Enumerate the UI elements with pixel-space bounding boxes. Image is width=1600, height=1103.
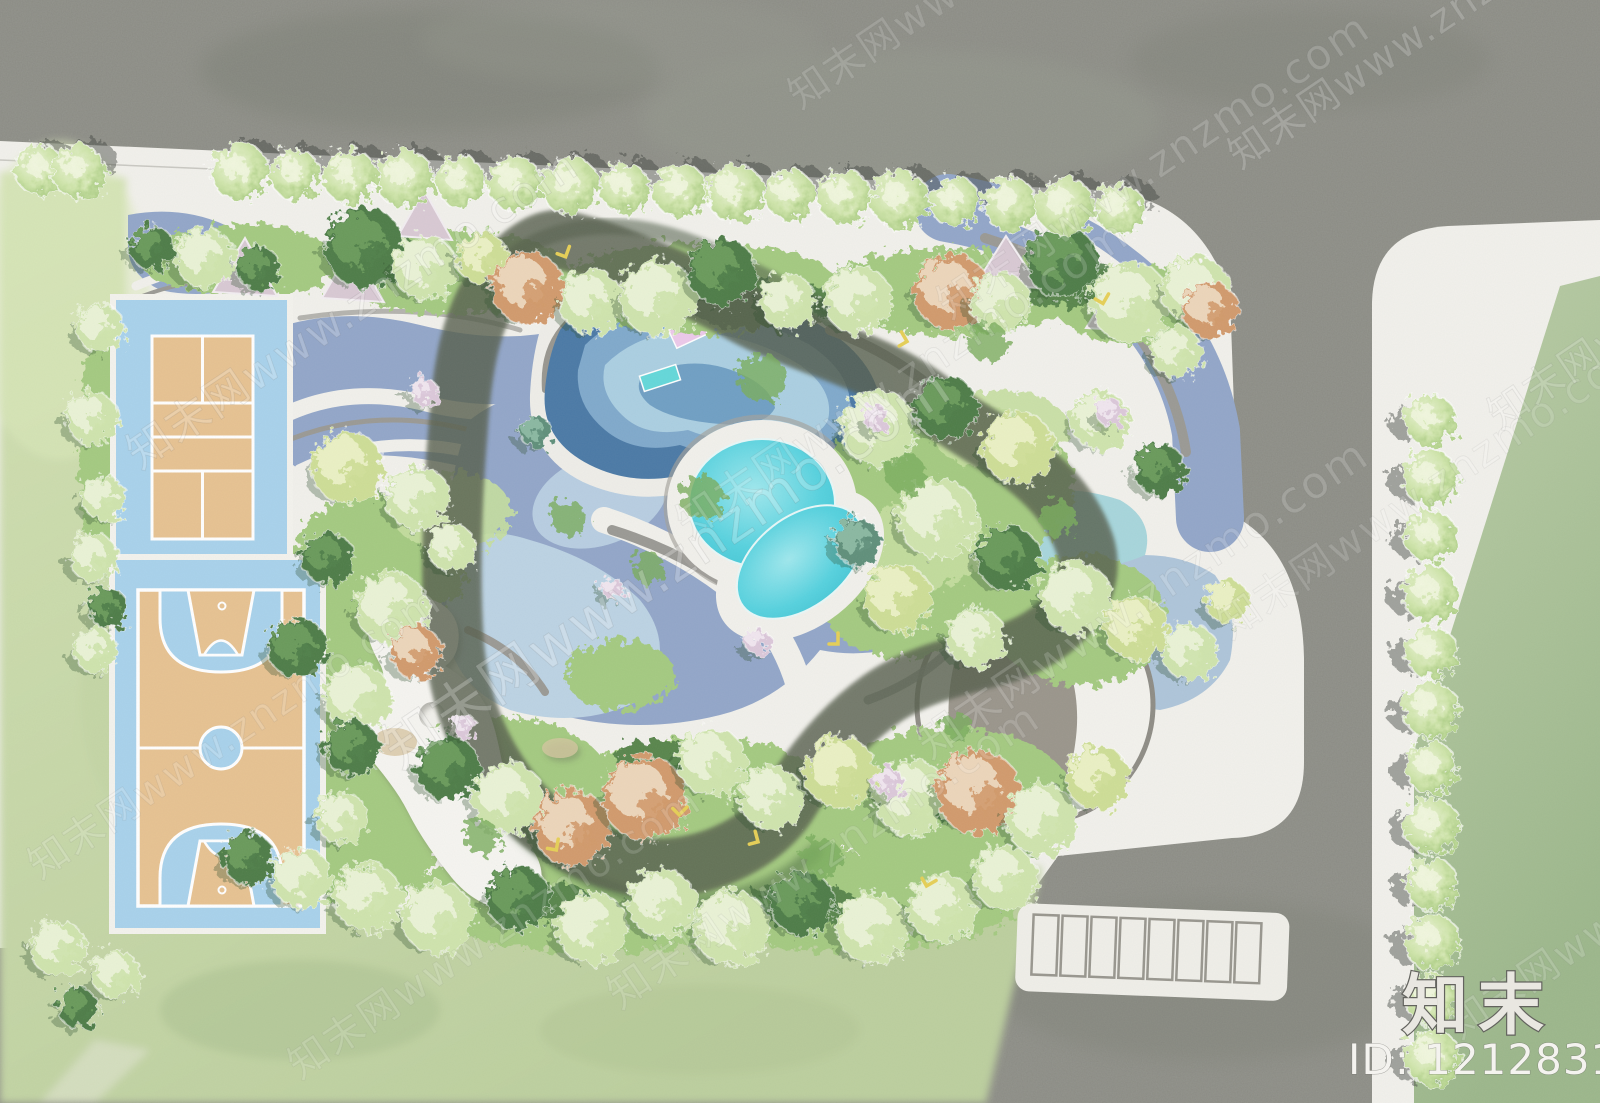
landscape-plan-canvas: 知末网www.znzmo.com知末网www.znzmo.com知末网www.z… (0, 0, 1600, 1103)
site-logo: 知末 (1402, 967, 1554, 1044)
site-plan-drawing: 知末网www.znzmo.com知末网www.znzmo.com知末网www.z… (0, 0, 1600, 1103)
site-id-label: ID: 1212831201 (1348, 1035, 1600, 1084)
